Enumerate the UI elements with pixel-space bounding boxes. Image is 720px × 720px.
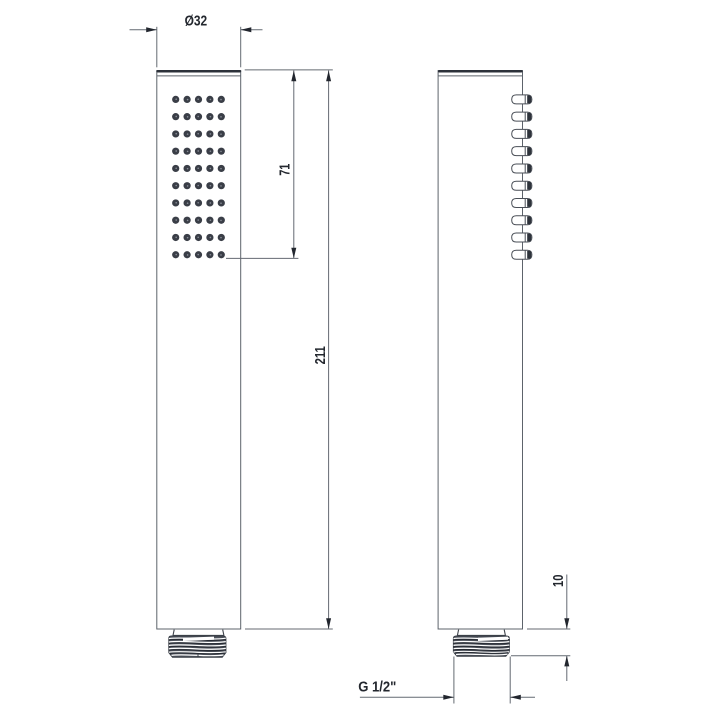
- svg-text:Ø32: Ø32: [185, 13, 208, 29]
- svg-text:71: 71: [278, 164, 294, 176]
- svg-text:G 1/2": G 1/2": [358, 679, 396, 695]
- svg-text:211: 211: [313, 346, 329, 364]
- svg-text:10: 10: [551, 575, 567, 587]
